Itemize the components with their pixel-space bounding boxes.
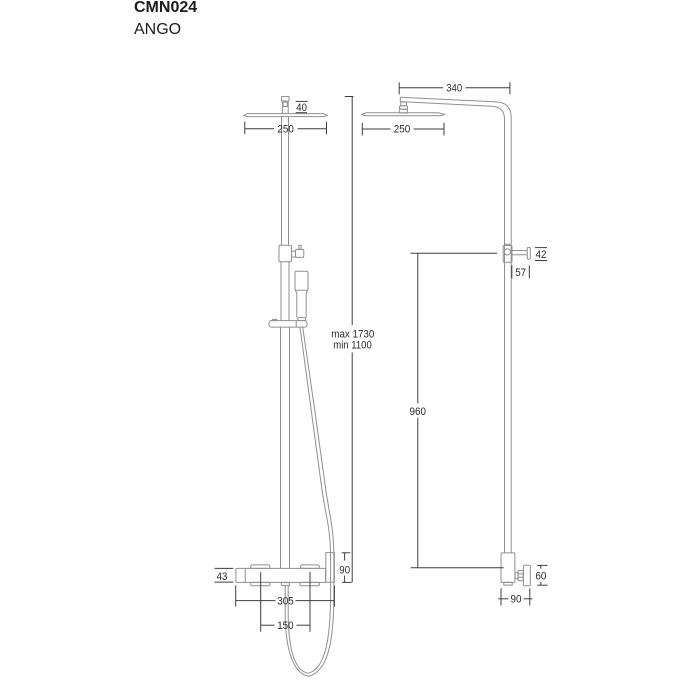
svg-text:90: 90 bbox=[339, 565, 350, 577]
svg-text:60: 60 bbox=[535, 570, 546, 582]
svg-text:340: 340 bbox=[446, 83, 462, 95]
svg-text:max 1730: max 1730 bbox=[331, 328, 374, 340]
svg-text:43: 43 bbox=[217, 571, 228, 583]
svg-text:min 1100: min 1100 bbox=[333, 340, 372, 352]
svg-text:250: 250 bbox=[277, 123, 293, 135]
svg-text:ANGO: ANGO bbox=[134, 21, 181, 38]
svg-text:305: 305 bbox=[277, 595, 293, 607]
svg-text:960: 960 bbox=[410, 406, 427, 418]
svg-text:150: 150 bbox=[277, 620, 293, 632]
svg-text:250: 250 bbox=[394, 123, 410, 135]
svg-text:42: 42 bbox=[536, 249, 547, 261]
svg-text:CMN024: CMN024 bbox=[134, 0, 197, 16]
svg-text:90: 90 bbox=[511, 594, 522, 606]
svg-text:40: 40 bbox=[296, 102, 307, 114]
svg-text:57: 57 bbox=[515, 267, 526, 279]
